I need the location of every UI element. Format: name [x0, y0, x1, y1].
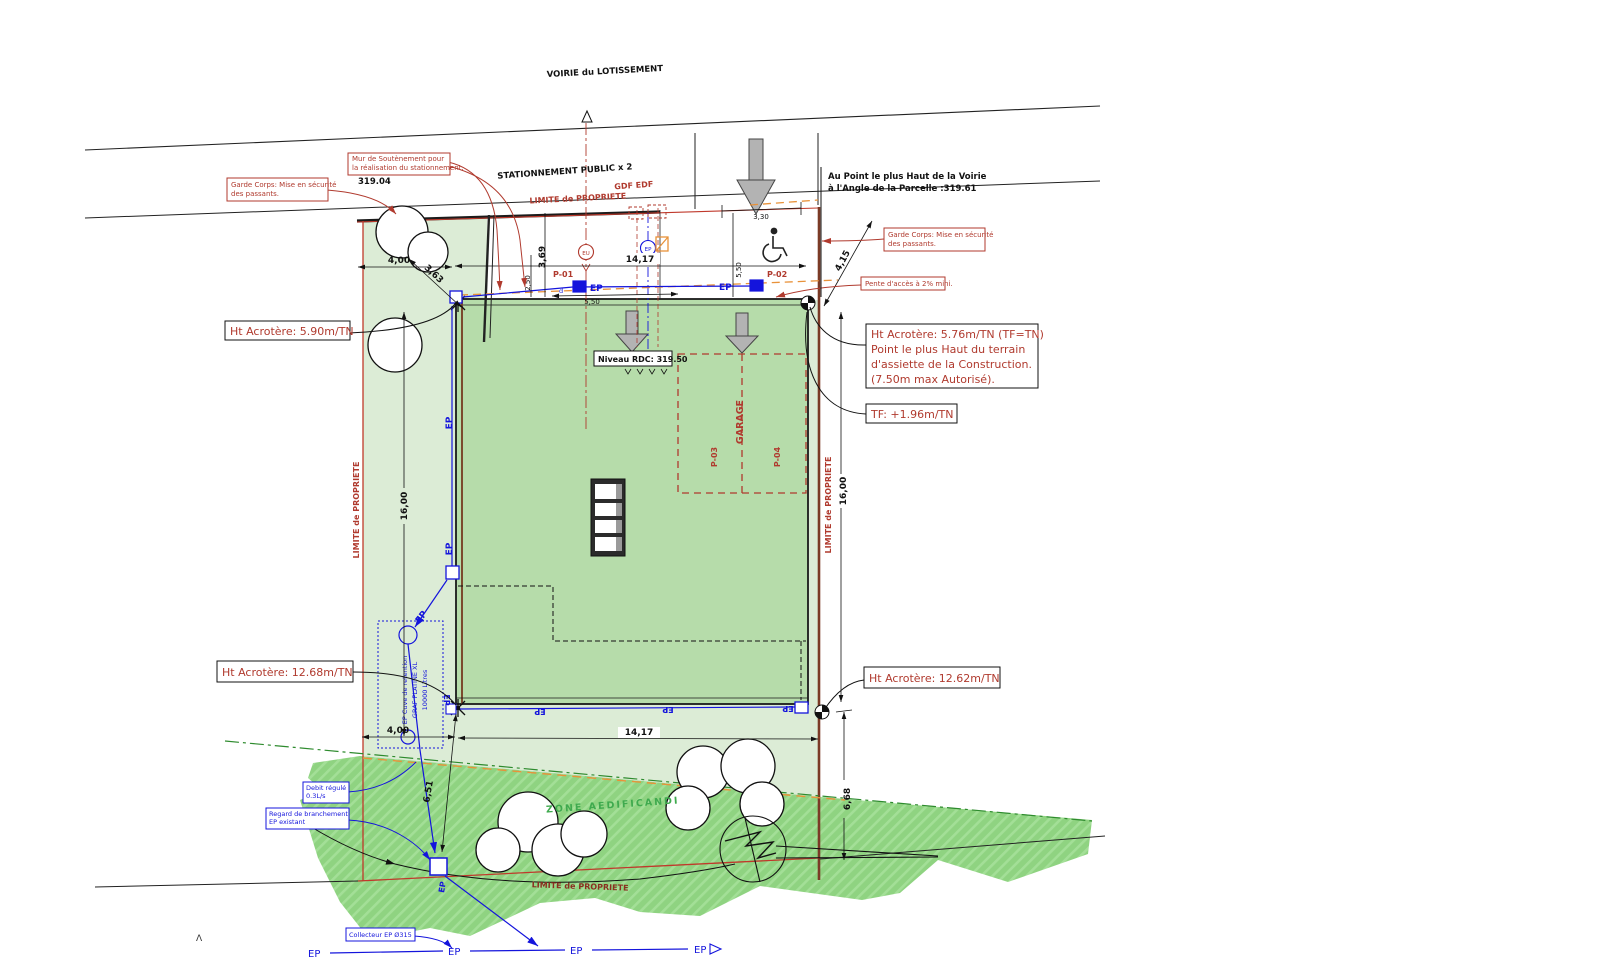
acrotere-576-callout: Ht Acrotère: 5.76m/TN (TF=TN) Point le p… [866, 324, 1044, 388]
cuve-label-line1: EP Cuve de retention [401, 656, 409, 725]
skylight-window-icon [591, 479, 625, 556]
p03-label: P-03 [710, 447, 719, 467]
dim-6-68: 6,68 [843, 788, 853, 810]
eu-label: EU [582, 251, 590, 257]
benchmark-icon [801, 296, 815, 310]
acrotere-1268-callout: Ht Acrotère: 12.68m/TN [217, 661, 353, 682]
cuve-label-line2: GRAF PLATINE XL [411, 662, 419, 719]
dim-3-69: 3,69 [538, 246, 548, 268]
garde-corps-left-callout: Garde Corps: Mise en sécurité des passan… [227, 178, 336, 201]
tree-icon [368, 318, 422, 372]
acrotere-590-callout: Ht Acrotère: 5.90m/TN [225, 321, 354, 340]
dim-16-00-left: 16,00 [400, 492, 410, 520]
ep-flow-arrow-icon [710, 944, 721, 954]
garde-right-line2: des passants. [888, 240, 936, 248]
p01-label: P-01 [553, 270, 574, 279]
p02-label: P-02 [767, 270, 787, 279]
garage-label: GARAGE [735, 400, 746, 444]
site-plan-canvas: GARAGE P-03 P-04 [0, 0, 1600, 964]
niveau-rdc-label: Niveau RDC: 319.50 [598, 355, 688, 364]
regard-line1: Regard de branchement [269, 810, 348, 818]
dim-3-30: 3,30 [753, 213, 769, 221]
debit-line1: Debit régulé [306, 784, 346, 792]
ep-label: EP [662, 705, 673, 714]
garde-left-line1: Garde Corps: Mise en sécurité [231, 181, 336, 189]
garde-corps-right-callout: Garde Corps: Mise en sécurité des passan… [884, 228, 993, 251]
au-point-line2: à l'Angle de la Parcelle :319.61 [828, 184, 977, 194]
level-319-04: 319.04 [358, 177, 391, 187]
dim-2-50: 2,50 [524, 275, 532, 291]
regard-line2: EP existant [269, 818, 306, 826]
limite-propriete-right: LIMITE de PROPRIETE [824, 457, 833, 554]
acrotere-576-line2: Point le plus Haut du terrain [871, 343, 1025, 356]
benchmark-icon [815, 705, 829, 719]
acrotere-590-label: Ht Acrotère: 5.90m/TN [230, 325, 354, 338]
dim-4-15: 4,15 [834, 249, 853, 273]
p02-box-icon [750, 280, 763, 291]
dim-4-00-top: 4,00 [388, 256, 410, 266]
tf-callout: TF: +1.96m/TN [866, 404, 957, 423]
p04-label: P-04 [773, 446, 782, 467]
tf-label: TF: +1.96m/TN [870, 408, 953, 421]
regard-icon [430, 858, 447, 875]
ep-box-icon [446, 566, 459, 579]
mur-soutenement-callout: Mur de Soutènement pour la réalisation d… [348, 153, 464, 175]
collecteur-label: Collecteur EP Ø315 [349, 931, 412, 939]
dim-14-17-top: 14,17 [626, 255, 654, 265]
acrotere-1268-label: Ht Acrotère: 12.68m/TN [222, 666, 353, 679]
debit-regule-callout: Debit régulé 0.3L/s [303, 782, 349, 803]
ep-label: EP [570, 946, 582, 957]
ep-label: EP [590, 284, 603, 294]
dim-16-00-right: 16,00 [839, 477, 849, 505]
collecteur-callout: Collecteur EP Ø315 [346, 928, 415, 941]
regard-branchement-callout: Regard de branchement EP existant [266, 808, 349, 829]
pente-label: Pente d'accès à 2% mini. [865, 280, 953, 288]
limite-propriete-left: LIMITE de PROPRIETE [352, 462, 361, 559]
ep-label: EP [445, 416, 455, 429]
voirie-title: VOIRIE du LOTISSEMENT [546, 64, 663, 80]
dim-4-00-bottom: 4,00 [387, 726, 409, 736]
tree-icon [666, 786, 710, 830]
tree-icon [561, 811, 607, 857]
garde-right-line1: Garde Corps: Mise en sécurité [888, 231, 993, 239]
acrotere-576-line1: Ht Acrotère: 5.76m/TN (TF=TN) [871, 328, 1044, 341]
acrotere-1262-label: Ht Acrotère: 12.62m/TN [869, 672, 1000, 685]
ep-label: EP [445, 542, 455, 555]
caret-mark: Λ [196, 934, 203, 944]
garde-left-line2: des passants. [231, 190, 279, 198]
d-valve-label: d [559, 287, 563, 295]
pente-acces-callout: Pente d'accès à 2% mini. [861, 277, 953, 290]
ep-manhole-label: EP [645, 247, 652, 253]
dim-14-17-bottom: 14,17 [625, 728, 653, 738]
mur-line2: la réalisation du stationnement. [352, 164, 464, 172]
ep-label: EP [694, 945, 706, 956]
tree-icon [476, 828, 520, 872]
gdf-edf-label: GDF EDF [614, 180, 654, 192]
ep-label: EP [782, 704, 793, 713]
au-point-line1: Au Point le plus Haut de la Voirie [828, 172, 987, 182]
p01-box-icon [573, 281, 586, 292]
acrotere-576-line4: (7.50m max Autorisé). [871, 373, 995, 386]
north-arrow-icon [582, 111, 592, 122]
dim-5-50-vertical: 5,50 [735, 262, 743, 278]
cuve-label-line3: 10000 Litres [421, 669, 429, 710]
ep-box-icon [795, 702, 808, 713]
ep-label: EP [719, 283, 732, 293]
ep-label: EP [308, 949, 320, 960]
ep-box-icon [450, 291, 462, 303]
limite-propriete-top: LIMITE de PROPRIETE [529, 191, 626, 205]
dim-5-50-top: 5,50 [584, 298, 600, 306]
ep-label: EP [534, 707, 545, 716]
acrotere-576-line3: d'assiette de la Construction. [871, 358, 1032, 371]
site-plan-svg: GARAGE P-03 P-04 [0, 0, 1600, 964]
stationnement-label: STATIONNEMENT PUBLIC x 2 [497, 162, 633, 181]
acrotere-1262-callout: Ht Acrotère: 12.62m/TN [864, 667, 1000, 688]
ep-label: EP [448, 947, 460, 958]
flow-arrow-icon [737, 139, 775, 214]
tree-icon [740, 782, 784, 826]
debit-line2: 0.3L/s [306, 792, 326, 800]
mur-line1: Mur de Soutènement pour [352, 155, 444, 163]
